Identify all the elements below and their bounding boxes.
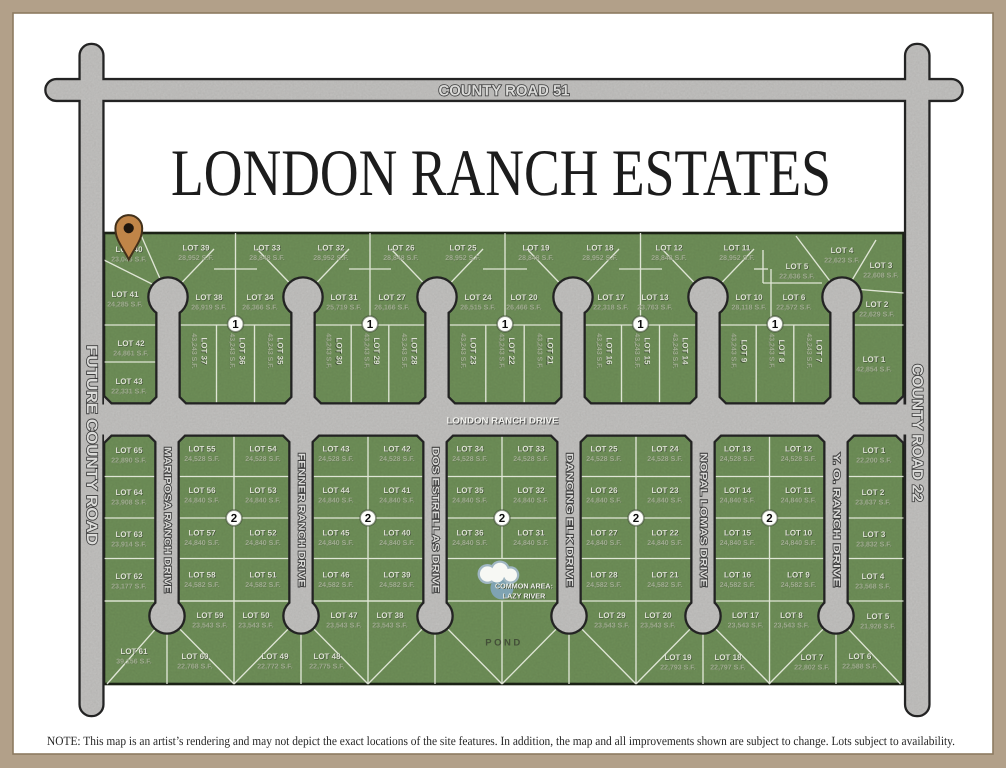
svg-text:24,528 S.F.: 24,528 S.F. [452, 456, 487, 463]
svg-text:DANCING ELK DRIVE: DANCING ELK DRIVE [564, 453, 575, 588]
svg-text:24,582 S.F.: 24,582 S.F. [781, 582, 816, 589]
svg-text:LOT 34: LOT 34 [456, 445, 484, 454]
svg-text:LOT 54: LOT 54 [249, 445, 277, 454]
svg-text:24,840 S.F.: 24,840 S.F. [379, 498, 414, 505]
svg-text:LOT 28: LOT 28 [590, 571, 618, 580]
svg-text:LOT 47: LOT 47 [330, 611, 358, 620]
svg-text:LOT 52: LOT 52 [249, 529, 277, 538]
svg-text:LOT 16: LOT 16 [605, 337, 614, 365]
svg-text:LOT 5: LOT 5 [867, 612, 890, 621]
svg-text:43,243 S.F.: 43,243 S.F. [595, 333, 602, 368]
svg-text:22,200 S.F.: 22,200 S.F. [856, 458, 891, 465]
svg-text:LOT 22: LOT 22 [651, 529, 679, 538]
svg-text:LOT 41: LOT 41 [383, 486, 411, 495]
svg-text:23,763 S.F.: 23,763 S.F. [637, 305, 672, 312]
svg-text:2: 2 [365, 512, 371, 525]
svg-text:Y. O. RANCH DRIVE: Y. O. RANCH DRIVE [831, 453, 842, 588]
svg-text:LOT 41: LOT 41 [111, 290, 139, 299]
svg-text:2: 2 [499, 512, 505, 525]
svg-text:22,629 S.F.: 22,629 S.F. [859, 312, 894, 319]
svg-text:MARIPOSA RANCH DRIVE: MARIPOSA RANCH DRIVE [162, 447, 173, 594]
svg-text:LOT 13: LOT 13 [641, 293, 669, 302]
svg-text:39,156 S.F.: 39,156 S.F. [116, 659, 151, 666]
svg-text:24,840 S.F.: 24,840 S.F. [184, 540, 219, 547]
svg-text:24,840 S.F.: 24,840 S.F. [720, 498, 755, 505]
svg-text:LOT 19: LOT 19 [664, 653, 692, 662]
svg-text:23,543 S.F.: 23,543 S.F. [640, 623, 675, 630]
svg-text:23,637 S.F.: 23,637 S.F. [855, 500, 890, 507]
svg-text:24,528 S.F.: 24,528 S.F. [245, 456, 280, 463]
svg-text:23,914 S.F.: 23,914 S.F. [111, 542, 146, 549]
svg-text:LOT 46: LOT 46 [322, 571, 350, 580]
svg-text:43,243 S.F.: 43,243 S.F. [671, 333, 678, 368]
svg-text:43,243 S.F.: 43,243 S.F. [805, 333, 812, 368]
svg-text:LOT 27: LOT 27 [378, 293, 406, 302]
svg-text:24,528 S.F.: 24,528 S.F. [318, 456, 353, 463]
svg-text:LOT 45: LOT 45 [322, 529, 350, 538]
svg-text:1: 1 [232, 318, 239, 331]
svg-text:LOT 65: LOT 65 [115, 446, 143, 455]
svg-text:25,719 S.F.: 25,719 S.F. [326, 305, 361, 312]
svg-text:24,840 S.F.: 24,840 S.F. [720, 540, 755, 547]
svg-text:24,840 S.F.: 24,840 S.F. [452, 540, 487, 547]
svg-text:43,243 S.F.: 43,243 S.F. [228, 333, 235, 368]
svg-text:COUNTY ROAD 51: COUNTY ROAD 51 [439, 83, 570, 100]
svg-text:22,793 S.F.: 22,793 S.F. [660, 665, 695, 672]
svg-text:28,952 S.F.: 28,952 S.F. [445, 255, 480, 262]
svg-text:LOT 43: LOT 43 [115, 377, 143, 386]
svg-text:LOT 9: LOT 9 [739, 340, 748, 363]
svg-text:LOT 6: LOT 6 [849, 652, 872, 661]
svg-text:24,528 S.F.: 24,528 S.F. [586, 456, 621, 463]
svg-text:LOT 18: LOT 18 [714, 653, 742, 662]
svg-text:2: 2 [231, 512, 237, 525]
svg-text:43,243 S.F.: 43,243 S.F. [536, 333, 543, 368]
svg-text:43,243 S.F.: 43,243 S.F. [362, 333, 369, 368]
svg-text:24,840 S.F.: 24,840 S.F. [513, 540, 548, 547]
svg-text:LOT 42: LOT 42 [383, 445, 411, 454]
svg-text:22,572 S.F.: 22,572 S.F. [776, 305, 811, 312]
svg-text:24,840 S.F.: 24,840 S.F. [647, 498, 682, 505]
svg-text:23,832 S.F.: 23,832 S.F. [856, 542, 891, 549]
svg-text:LOT 27: LOT 27 [590, 529, 618, 538]
svg-text:LOT 33: LOT 33 [517, 445, 545, 454]
svg-text:LOT 57: LOT 57 [188, 529, 216, 538]
svg-text:24,528 S.F.: 24,528 S.F. [720, 456, 755, 463]
svg-text:LOT 4: LOT 4 [862, 572, 885, 581]
svg-text:LOT 31: LOT 31 [330, 293, 358, 302]
svg-text:43,243 S.F.: 43,243 S.F. [497, 333, 504, 368]
svg-text:LOT 44: LOT 44 [322, 486, 350, 495]
svg-text:LOT 50: LOT 50 [242, 611, 270, 620]
svg-text:22,608 S.F.: 22,608 S.F. [863, 273, 898, 280]
svg-text:LOT 36: LOT 36 [238, 337, 247, 365]
svg-text:43,243 S.F.: 43,243 S.F. [400, 333, 407, 368]
svg-text:24,528 S.F.: 24,528 S.F. [647, 456, 682, 463]
svg-text:LOT 49: LOT 49 [261, 652, 289, 661]
svg-text:2: 2 [633, 512, 639, 525]
svg-text:LOT 33: LOT 33 [253, 244, 281, 253]
svg-text:24,582 S.F.: 24,582 S.F. [379, 582, 414, 589]
svg-text:21,926 S.F.: 21,926 S.F. [860, 624, 895, 631]
svg-text:NOPAL LOMAS DRIVE: NOPAL LOMAS DRIVE [698, 453, 709, 588]
svg-text:22,775 S.F.: 22,775 S.F. [309, 664, 344, 671]
svg-text:1: 1 [772, 318, 779, 331]
svg-text:24,840 S.F.: 24,840 S.F. [245, 498, 280, 505]
svg-text:LOT 17: LOT 17 [732, 611, 760, 620]
svg-text:LOT 26: LOT 26 [387, 244, 415, 253]
svg-text:23,543 S.F.: 23,543 S.F. [326, 623, 361, 630]
svg-text:LOT 13: LOT 13 [724, 445, 752, 454]
svg-text:22,802 S.F.: 22,802 S.F. [794, 665, 829, 672]
svg-text:LOT 10: LOT 10 [785, 529, 813, 538]
svg-text:24,840 S.F.: 24,840 S.F. [647, 540, 682, 547]
svg-text:LOT 24: LOT 24 [651, 445, 679, 454]
svg-text:24,840 S.F.: 24,840 S.F. [586, 540, 621, 547]
svg-text:LOT 58: LOT 58 [188, 571, 216, 580]
svg-text:LAZY RIVER: LAZY RIVER [503, 592, 546, 601]
svg-text:LOT 10: LOT 10 [735, 293, 763, 302]
svg-text:28,118 S.F.: 28,118 S.F. [731, 305, 766, 312]
svg-text:22,588 S.F.: 22,588 S.F. [842, 664, 877, 671]
svg-text:FENNER RANCH DRIVE: FENNER RANCH DRIVE [296, 453, 307, 588]
svg-text:24,840 S.F.: 24,840 S.F. [781, 540, 816, 547]
svg-text:LOT 30: LOT 30 [334, 337, 343, 365]
svg-text:LOT 64: LOT 64 [115, 488, 143, 497]
svg-text:LOT 8: LOT 8 [780, 611, 803, 620]
svg-text:LOT 9: LOT 9 [787, 571, 810, 580]
svg-text:26,919 S.F.: 26,919 S.F. [191, 305, 226, 312]
svg-text:28,952 S.F.: 28,952 S.F. [178, 255, 213, 262]
svg-text:POND: POND [485, 638, 522, 649]
svg-text:LOT 32: LOT 32 [317, 244, 345, 253]
svg-text:22,623 S.F.: 22,623 S.F. [824, 258, 859, 265]
svg-text:24,582 S.F.: 24,582 S.F. [586, 582, 621, 589]
svg-text:LOT 12: LOT 12 [785, 445, 813, 454]
svg-text:23,543 S.F.: 23,543 S.F. [238, 623, 273, 630]
svg-text:28,848 S.F.: 28,848 S.F. [518, 255, 553, 262]
svg-text:LOT 40: LOT 40 [383, 529, 411, 538]
svg-text:LOT 61: LOT 61 [120, 647, 148, 656]
svg-text:LOT 22: LOT 22 [507, 337, 516, 365]
svg-text:22,636 S.F.: 22,636 S.F. [779, 274, 814, 281]
svg-text:43,243 S.F.: 43,243 S.F. [325, 333, 332, 368]
svg-text:LOT 31: LOT 31 [517, 529, 545, 538]
svg-text:24,582 S.F.: 24,582 S.F. [245, 582, 280, 589]
svg-text:24,528 S.F.: 24,528 S.F. [379, 456, 414, 463]
svg-text:22,768 S.F.: 22,768 S.F. [177, 664, 212, 671]
svg-text:LOT 56: LOT 56 [188, 486, 216, 495]
svg-text:LOT 16: LOT 16 [724, 571, 752, 580]
svg-text:LOT 8: LOT 8 [777, 340, 786, 363]
svg-text:24,582 S.F.: 24,582 S.F. [318, 582, 353, 589]
svg-text:LOT 29: LOT 29 [372, 337, 381, 365]
svg-text:LOT 35: LOT 35 [276, 337, 285, 365]
svg-text:LOT 26: LOT 26 [590, 486, 618, 495]
svg-text:43,243 S.F.: 43,243 S.F. [459, 333, 466, 368]
svg-text:LOT 37: LOT 37 [200, 337, 209, 365]
svg-text:LOT 1: LOT 1 [863, 446, 886, 455]
svg-text:24,840 S.F.: 24,840 S.F. [379, 540, 414, 547]
svg-text:LOT 23: LOT 23 [651, 486, 679, 495]
svg-text:LOT 38: LOT 38 [376, 611, 404, 620]
svg-text:LOT 24: LOT 24 [464, 293, 492, 302]
svg-text:LOT 51: LOT 51 [249, 571, 277, 580]
svg-text:24,840 S.F.: 24,840 S.F. [452, 498, 487, 505]
svg-text:24,840 S.F.: 24,840 S.F. [586, 498, 621, 505]
svg-text:24,840 S.F.: 24,840 S.F. [781, 498, 816, 505]
svg-text:DOS ESTRELLAS DRIVE: DOS ESTRELLAS DRIVE [430, 447, 441, 594]
svg-text:23,543 S.F.: 23,543 S.F. [728, 623, 763, 630]
svg-text:28,848 S.F.: 28,848 S.F. [383, 255, 418, 262]
svg-text:LOT 38: LOT 38 [195, 293, 223, 302]
svg-text:24,840 S.F.: 24,840 S.F. [513, 498, 548, 505]
svg-text:43,243 S.F.: 43,243 S.F. [767, 333, 774, 368]
svg-text:LOT 21: LOT 21 [651, 571, 679, 580]
svg-text:43,243 S.F.: 43,243 S.F. [266, 333, 273, 368]
svg-text:LOT 21: LOT 21 [545, 337, 554, 365]
svg-text:23,177 S.F.: 23,177 S.F. [111, 584, 146, 591]
svg-text:22,772 S.F.: 22,772 S.F. [257, 664, 292, 671]
svg-text:LONDON RANCH ESTATES: LONDON RANCH ESTATES [171, 137, 831, 210]
svg-text:LOT 3: LOT 3 [863, 530, 886, 539]
svg-text:24,840 S.F.: 24,840 S.F. [318, 540, 353, 547]
svg-text:LOT 29: LOT 29 [598, 611, 626, 620]
svg-text:23,543 S.F.: 23,543 S.F. [594, 623, 629, 630]
svg-text:LOT 59: LOT 59 [196, 611, 224, 620]
svg-text:LOT 19: LOT 19 [522, 244, 550, 253]
svg-text:28,952 S.F.: 28,952 S.F. [719, 255, 754, 262]
svg-text:LOT 7: LOT 7 [815, 340, 824, 363]
svg-text:23,543 S.F.: 23,543 S.F. [774, 623, 809, 630]
svg-text:LOT 11: LOT 11 [785, 486, 812, 495]
svg-text:LOT 53: LOT 53 [249, 486, 277, 495]
svg-text:22,331 S.F.: 22,331 S.F. [111, 389, 146, 396]
svg-text:26,515 S.F.: 26,515 S.F. [460, 305, 495, 312]
svg-text:23,568 S.F.: 23,568 S.F. [855, 584, 890, 591]
svg-text:LOT 34: LOT 34 [246, 293, 274, 302]
svg-text:LOT 25: LOT 25 [590, 445, 618, 454]
svg-text:LOT 63: LOT 63 [115, 530, 143, 539]
svg-text:28,848 S.F.: 28,848 S.F. [249, 255, 284, 262]
svg-text:23,543 S.F.: 23,543 S.F. [192, 623, 227, 630]
svg-text:LOT 12: LOT 12 [655, 244, 683, 253]
svg-text:28,952 S.F.: 28,952 S.F. [313, 255, 348, 262]
svg-text:24,861 S.F.: 24,861 S.F. [113, 351, 148, 358]
svg-text:LOT 62: LOT 62 [115, 572, 143, 581]
svg-text:28,952 S.F.: 28,952 S.F. [582, 255, 617, 262]
svg-text:LOT 20: LOT 20 [644, 611, 672, 620]
svg-text:24,582 S.F.: 24,582 S.F. [184, 582, 219, 589]
svg-text:1: 1 [502, 318, 509, 331]
svg-text:24,840 S.F.: 24,840 S.F. [318, 498, 353, 505]
svg-text:LOT 7: LOT 7 [801, 653, 824, 662]
svg-text:24,582 S.F.: 24,582 S.F. [720, 582, 755, 589]
svg-text:23,543 S.F.: 23,543 S.F. [372, 623, 407, 630]
svg-text:LOT 1: LOT 1 [863, 355, 886, 364]
svg-text:LOT 55: LOT 55 [188, 445, 216, 454]
svg-text:LOT 42: LOT 42 [117, 339, 145, 348]
svg-text:LOT 20: LOT 20 [510, 293, 538, 302]
svg-text:COMMON AREA:: COMMON AREA: [495, 582, 553, 591]
svg-text:22,318 S.F.: 22,318 S.F. [593, 305, 628, 312]
svg-text:LOT 4: LOT 4 [831, 246, 854, 255]
svg-text:NOTE: This map is an artist’s: NOTE: This map is an artist’s rendering … [47, 734, 955, 748]
svg-text:26,366 S.F.: 26,366 S.F. [242, 305, 277, 312]
svg-text:LOT 5: LOT 5 [786, 262, 809, 271]
svg-text:1: 1 [637, 318, 644, 331]
svg-text:LONDON RANCH DRIVE: LONDON RANCH DRIVE [447, 416, 559, 426]
svg-text:24,528 S.F.: 24,528 S.F. [184, 456, 219, 463]
svg-text:LOT 25: LOT 25 [449, 244, 477, 253]
svg-text:LOT 32: LOT 32 [517, 486, 545, 495]
svg-text:42,854 S.F.: 42,854 S.F. [856, 367, 891, 374]
svg-text:LOT 48: LOT 48 [313, 652, 341, 661]
svg-text:24,528 S.F.: 24,528 S.F. [781, 456, 816, 463]
svg-text:LOT 39: LOT 39 [383, 571, 411, 580]
svg-text:24,528 S.F.: 24,528 S.F. [513, 456, 548, 463]
svg-text:LOT 36: LOT 36 [456, 529, 484, 538]
svg-text:COUNTY ROAD 22: COUNTY ROAD 22 [909, 364, 926, 502]
svg-text:LOT 11: LOT 11 [724, 244, 751, 253]
svg-text:LOT 2: LOT 2 [862, 488, 885, 497]
svg-text:43,243 S.F.: 43,243 S.F. [730, 333, 737, 368]
svg-text:28,848 S.F.: 28,848 S.F. [651, 255, 686, 262]
svg-text:1: 1 [367, 318, 374, 331]
svg-text:LOT 14: LOT 14 [724, 486, 752, 495]
svg-text:24,840 S.F.: 24,840 S.F. [184, 498, 219, 505]
svg-text:LOT 15: LOT 15 [643, 337, 652, 365]
svg-text:2: 2 [766, 512, 772, 525]
svg-text:43,243 S.F.: 43,243 S.F. [190, 333, 197, 368]
svg-text:26,166 S.F.: 26,166 S.F. [374, 305, 409, 312]
svg-text:LOT 17: LOT 17 [597, 293, 625, 302]
svg-text:LOT 3: LOT 3 [870, 261, 893, 270]
svg-text:26,466 S.F.: 26,466 S.F. [506, 305, 541, 312]
svg-text:FUTURE COUNTY ROAD: FUTURE COUNTY ROAD [83, 345, 100, 545]
svg-text:LOT 15: LOT 15 [724, 529, 752, 538]
svg-text:22,890 S.F.: 22,890 S.F. [111, 458, 146, 465]
svg-text:LOT 43: LOT 43 [322, 445, 350, 454]
svg-text:22,797 S.F.: 22,797 S.F. [710, 665, 745, 672]
svg-text:LOT 28: LOT 28 [410, 337, 419, 365]
svg-text:LOT 2: LOT 2 [866, 300, 889, 309]
svg-text:43,243 S.F.: 43,243 S.F. [633, 333, 640, 368]
svg-text:LOT 18: LOT 18 [586, 244, 614, 253]
svg-text:LOT 6: LOT 6 [783, 293, 806, 302]
svg-text:LOT 23: LOT 23 [469, 337, 478, 365]
svg-text:24,582 S.F.: 24,582 S.F. [647, 582, 682, 589]
svg-text:LOT 60: LOT 60 [181, 652, 209, 661]
svg-text:LOT 39: LOT 39 [182, 244, 210, 253]
svg-text:LOT 14: LOT 14 [681, 337, 690, 365]
svg-text:24,840 S.F.: 24,840 S.F. [245, 540, 280, 547]
svg-text:23,908 S.F.: 23,908 S.F. [111, 500, 146, 507]
svg-text:24,285 S.F.: 24,285 S.F. [107, 302, 142, 309]
svg-text:LOT 35: LOT 35 [456, 486, 484, 495]
